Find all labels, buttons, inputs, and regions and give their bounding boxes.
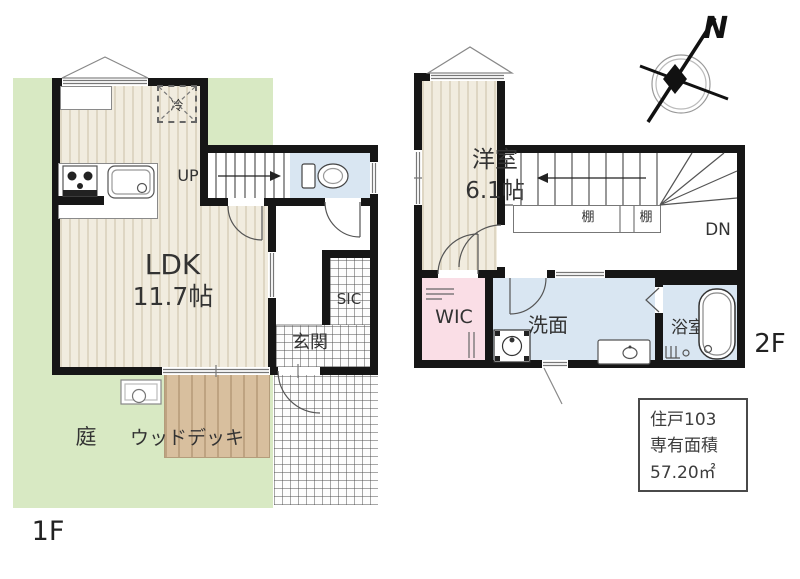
ldk-room xyxy=(60,86,200,367)
ldk-hall-door-opening xyxy=(228,198,264,206)
shelf-left-label: 棚 xyxy=(576,211,600,225)
western-room-side-window-opening xyxy=(414,150,422,205)
western-room-name: 洋室 xyxy=(448,148,542,173)
wood-deck-label: ウッドデッキ xyxy=(128,428,246,449)
ldk-room-name: LDK xyxy=(110,250,235,281)
kitchen-counter xyxy=(58,163,158,219)
western-room-size: 6.1帖 xyxy=(446,179,544,204)
stairs-up-label: UP xyxy=(170,167,206,185)
washroom-window-opening xyxy=(555,270,605,278)
unit-info-box: 住戸103 専有面積 57.20㎡ xyxy=(638,398,748,492)
f1-staircase-area xyxy=(208,153,290,198)
garden-label: 庭 xyxy=(64,426,108,449)
western-room xyxy=(422,81,497,270)
entrance-door-opening xyxy=(278,367,320,375)
washroom-label: 洗面 xyxy=(516,314,580,336)
wic-label: WIC xyxy=(426,307,482,328)
compass-north-label: N xyxy=(703,11,728,46)
window-seat-counter xyxy=(60,86,112,110)
stairs-down-label: DN xyxy=(696,221,740,240)
washroom-bottom-window-opening xyxy=(542,360,568,368)
western-room-bay-window-opening xyxy=(430,73,505,81)
compass-icon: N xyxy=(640,11,728,122)
entrance-label: 玄関 xyxy=(282,333,338,353)
wic-door-opening xyxy=(438,270,478,278)
hall-ldk-side-opening xyxy=(268,252,276,298)
toilet-room xyxy=(290,153,370,198)
sic-label: SIC xyxy=(326,291,372,308)
toilet-door-opening xyxy=(325,198,361,206)
ldk-bay-window-opening xyxy=(62,78,148,86)
area-value: 57.20㎡ xyxy=(650,460,736,486)
f2-floor-label: 2F xyxy=(744,330,796,359)
unit-number: 住戸103 xyxy=(650,407,736,433)
deck-sliding-door-opening xyxy=(162,367,270,375)
entrance-porch-tile xyxy=(274,373,378,505)
refrigerator-space: 冷 xyxy=(157,85,197,123)
bathroom-label: 浴室 xyxy=(662,319,714,338)
toilet-window-opening xyxy=(370,162,378,194)
shelf-right-label: 棚 xyxy=(634,211,658,225)
bathroom-door-opening xyxy=(655,287,663,313)
f1-floor-label: 1F xyxy=(20,517,76,547)
ldk-room-size: 11.7帖 xyxy=(108,283,238,311)
refrigerator-label: 冷 xyxy=(170,95,183,114)
western-room-door-opening xyxy=(497,225,505,267)
washroom-door-opening xyxy=(505,270,547,278)
area-label: 専有面積 xyxy=(650,433,736,459)
kitchen-partition-wall xyxy=(52,196,104,205)
floor-plan-canvas: 冷 LDK 11.7帖 庭 ウッドデッキ 玄関 SIC UP 1F 洋室 6.1… xyxy=(0,0,800,579)
sic-wall-horizontal xyxy=(322,250,370,258)
